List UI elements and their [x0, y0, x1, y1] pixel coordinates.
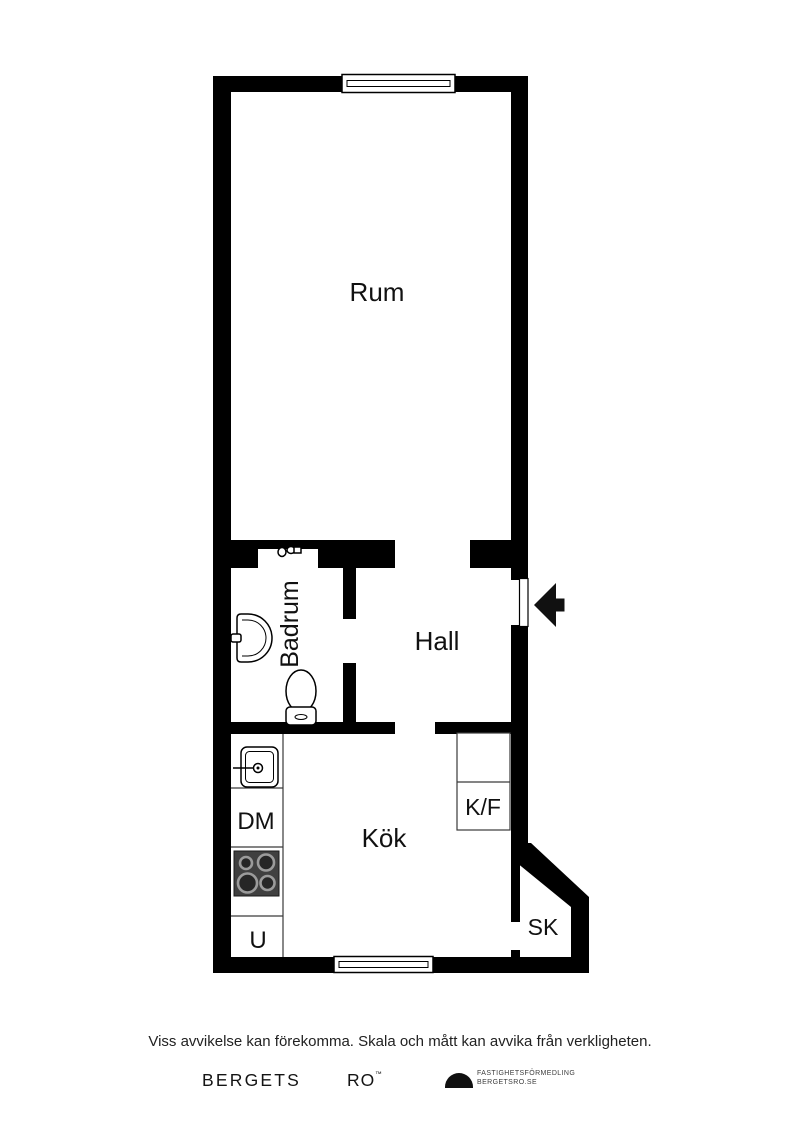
brand-ro-text: RO	[347, 1070, 375, 1090]
bathroom-sink-icon	[231, 614, 272, 662]
label-fridge-freezer: K/F	[465, 794, 501, 820]
brand-logo-ro: RO™	[347, 1070, 382, 1091]
wall-kok-top-right	[435, 722, 512, 734]
room-label-sk: SK	[528, 914, 559, 940]
room-label-rum: Rum	[350, 277, 405, 307]
window-bottom-icon	[334, 957, 433, 973]
agency-text: FASTIGHETSFÖRMEDLING BERGETSRO.SE	[477, 1069, 575, 1087]
wall-right-mid	[511, 625, 528, 852]
wall-left	[213, 76, 231, 973]
wall-sk-partition	[511, 852, 520, 922]
room-label-hall: Hall	[415, 626, 460, 656]
agency-line1: FASTIGHETSFÖRMEDLING	[477, 1069, 575, 1078]
floor-plan-drawing: Rum Badrum Hall Kök K/F DM U SK	[0, 0, 800, 1010]
brand-logo-bergets: BERGETS	[202, 1070, 301, 1091]
agency-line2: BERGETSRO.SE	[477, 1078, 575, 1087]
wall-badrum-right-upper	[343, 568, 356, 619]
window-top-icon	[342, 75, 455, 93]
stove-icon	[234, 851, 279, 896]
entrance-door	[520, 579, 529, 627]
toilet-icon	[286, 670, 316, 725]
wall-right-upper	[511, 76, 528, 580]
dome-logo-icon	[445, 1073, 473, 1088]
room-label-badrum: Badrum	[276, 580, 304, 668]
kitchen-sink-icon	[233, 747, 278, 787]
entrance-arrow-icon	[534, 583, 565, 627]
wall-sk-stub	[511, 950, 520, 960]
floor-plan-page: Rum Badrum Hall Kök K/F DM U SK Viss avv…	[0, 0, 800, 1131]
wall-badrum-right-lower	[343, 663, 356, 727]
label-oven: U	[249, 927, 266, 954]
trademark-symbol: ™	[375, 1071, 382, 1078]
disclaimer-text: Viss avvikelse kan förekomma. Skala och …	[0, 1033, 800, 1050]
wall-rum-bottom-right	[470, 540, 512, 568]
label-dishwasher: DM	[237, 808, 274, 835]
wall-diagonal-sk	[511, 843, 589, 973]
room-label-kok: Kök	[362, 823, 408, 853]
